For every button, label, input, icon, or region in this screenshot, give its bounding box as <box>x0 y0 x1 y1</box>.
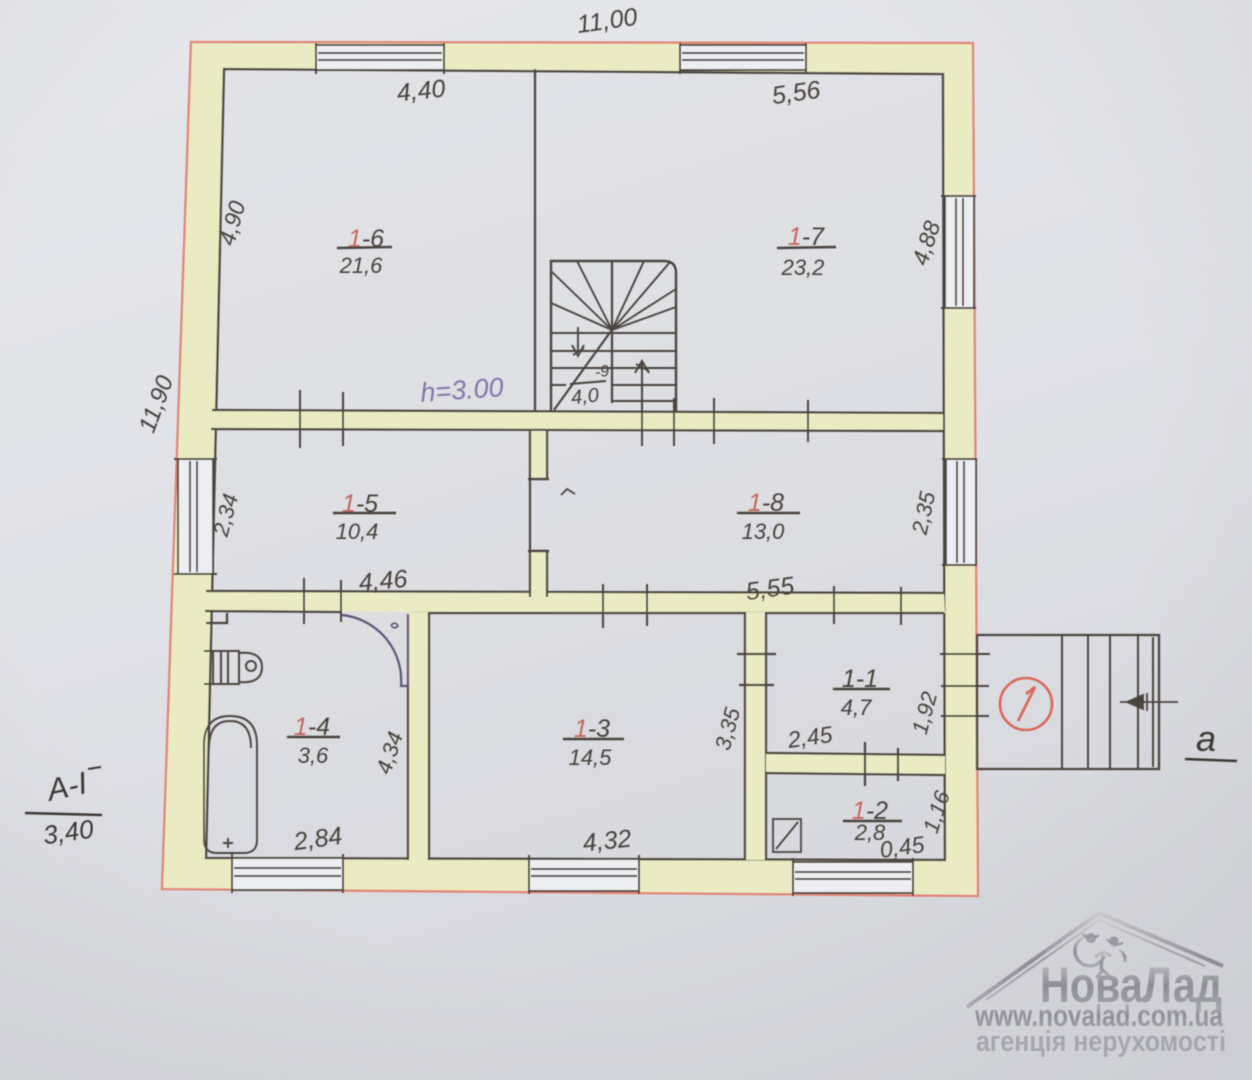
svg-text:-9: -9 <box>594 363 611 382</box>
svg-text:a: a <box>1196 718 1216 759</box>
svg-text:4,40: 4,40 <box>395 75 446 108</box>
svg-text:агенція нерухомості: агенція нерухомості <box>976 1026 1226 1058</box>
svg-text:2,8: 2,8 <box>854 820 886 845</box>
svg-text:4,46: 4,46 <box>358 565 409 597</box>
svg-text:h=3.00: h=3.00 <box>419 372 504 408</box>
svg-text:3,6: 3,6 <box>298 743 329 768</box>
svg-text:4,0: 4,0 <box>570 384 600 409</box>
svg-text:23,2: 23,2 <box>781 255 825 280</box>
svg-text:4,32: 4,32 <box>581 825 632 858</box>
svg-text:21,6: 21,6 <box>339 253 384 278</box>
svg-text:4,7: 4,7 <box>841 695 872 720</box>
svg-text:10,4: 10,4 <box>336 519 379 544</box>
svg-text:13,0: 13,0 <box>742 519 786 544</box>
svg-text:14,5: 14,5 <box>569 745 613 770</box>
